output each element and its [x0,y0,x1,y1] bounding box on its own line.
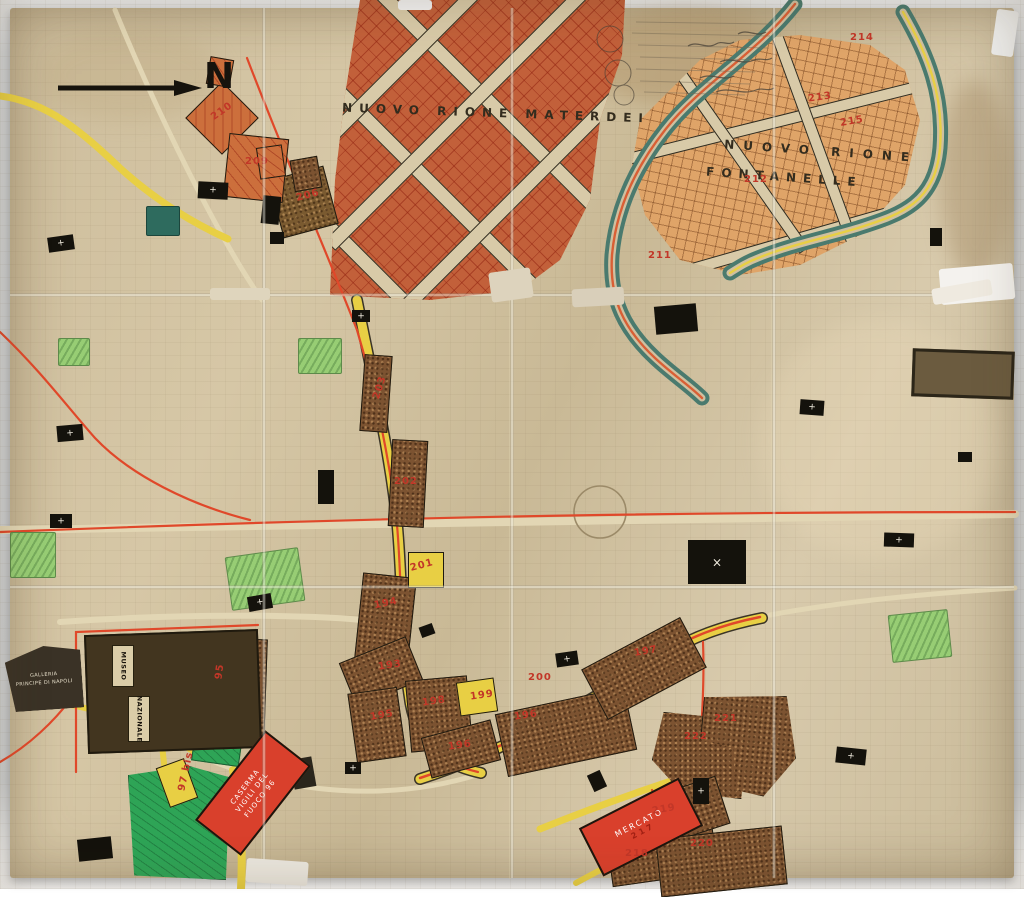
building-block [958,452,972,462]
church-cross-icon: + [563,655,572,665]
building-block [270,232,284,244]
church-building: + [835,746,867,765]
tear-patch [488,267,534,303]
church-building: × [688,540,746,584]
garden-area [58,338,90,366]
church-building: + [56,424,83,442]
church-building: + [345,762,361,774]
church-cross-icon: + [349,764,357,773]
paper-stain [940,80,1010,280]
parcel-shape [256,144,286,179]
parcel-shape [359,354,392,433]
paper-stain [40,30,220,120]
church-cross-icon: + [57,517,65,526]
church-cross-icon: + [895,536,903,545]
building-block [77,836,113,861]
church-building: + [198,181,229,200]
north-label: N [204,56,234,97]
garden-area [10,532,56,578]
church-cross-icon: + [66,429,74,439]
building-block [654,303,698,335]
photo-background: + + + + + + + × + + + + + MUSEO NAZIONAL… [0,0,1024,889]
tear-patch [398,0,432,10]
church-building: + [800,399,825,416]
church-building: + [50,514,72,528]
parcel-shape [408,552,444,588]
fold-seam [772,8,776,878]
church-cross-icon: + [697,787,705,796]
church-building: + [693,778,709,804]
garden-area [146,206,180,236]
fold-seam [262,8,266,878]
tear-patch [210,288,270,300]
building-block [930,228,942,246]
tear-patch [245,858,309,886]
parcel-shape [347,687,406,763]
nazionale-label-plaque: NAZIONALE [128,696,150,742]
museo-label-plaque: MUSEO [112,645,134,687]
museo-nazionale-building [84,629,262,754]
parcel-shape [456,678,498,717]
garden-area [298,338,342,374]
building-block [318,470,334,504]
church-cross-icon: + [808,403,816,413]
parcel-shape [289,156,322,192]
church-cross-icon: + [847,752,855,762]
building-block [911,348,1015,400]
fold-seam [510,8,514,878]
nazionale-label: NAZIONALE [135,696,143,743]
church-building: + [884,532,914,547]
museo-label: MUSEO [119,652,127,681]
church-cross-icon: × [712,557,722,569]
church-cross-icon: + [357,312,365,321]
tear-patch [572,287,625,308]
church-cross-icon: + [209,186,217,195]
fold-seam [10,585,1014,589]
church-cross-icon: + [57,239,66,249]
garden-area [888,609,953,663]
church-building: + [352,310,370,322]
parcel-shape [388,439,429,528]
